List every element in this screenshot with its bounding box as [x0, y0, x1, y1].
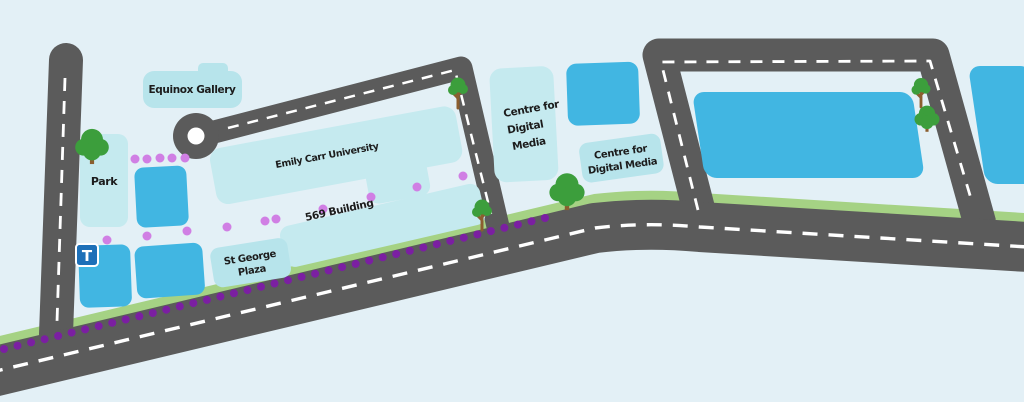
tree-canopy	[458, 84, 468, 94]
transit-marker-letter: T	[82, 247, 93, 265]
label-park: Park	[91, 175, 118, 188]
trail-dot-dark	[325, 266, 333, 274]
trail-dot-dark	[41, 335, 49, 343]
trail-dot-dark	[14, 342, 22, 350]
trail-dot-dark	[189, 299, 197, 307]
trail-dot-light	[223, 223, 232, 232]
trail-dot-dark	[257, 283, 265, 291]
trail-dot-dark	[473, 230, 481, 238]
building-blue-3[interactable]	[134, 242, 205, 299]
trail-dot-dark	[379, 253, 387, 261]
trail-dot-light	[413, 183, 422, 192]
trail-dot-light	[168, 154, 177, 163]
trail-dot-dark	[0, 345, 8, 353]
trail-dot-dark	[27, 338, 35, 346]
trail-dot-dark	[500, 224, 508, 232]
trail-dot-dark	[541, 214, 549, 222]
trail-dot-dark	[162, 306, 170, 314]
trail-dot-dark	[95, 322, 103, 330]
tree-canopy	[558, 188, 577, 207]
trail-dot-dark	[54, 332, 62, 340]
transit-marker[interactable]: T	[76, 244, 98, 266]
trail-dot-dark	[271, 280, 279, 288]
trail-dot-dark	[176, 302, 184, 310]
trail-dot-dark	[528, 217, 536, 225]
tree-canopy	[482, 206, 492, 216]
trail-dot-dark	[392, 250, 400, 258]
trail-dot-dark	[284, 276, 292, 284]
tree-canopy	[83, 143, 101, 161]
trail-dot-dark	[122, 316, 130, 324]
trail-dot-dark	[514, 221, 522, 229]
trail-dot-light	[103, 236, 112, 245]
trail-dot-dark	[135, 312, 143, 320]
trail-dot-light	[459, 172, 468, 181]
trail-dot-dark	[352, 260, 360, 268]
trail-dot-dark	[244, 286, 252, 294]
roundabout	[173, 113, 219, 159]
trail-dot-light	[272, 215, 281, 224]
trail-dot-light	[156, 154, 165, 163]
trail-dot-dark	[298, 273, 306, 281]
trail-dot-dark	[365, 257, 373, 265]
trail-dot-dark	[419, 244, 427, 252]
roundabout-island	[188, 128, 205, 145]
trail-dot-dark	[81, 325, 89, 333]
trail-dot-dark	[108, 319, 116, 327]
label-equinox-gallery: Equinox Gallery	[149, 84, 236, 96]
trail-dot-dark	[460, 234, 468, 242]
trail-dot-light	[143, 232, 152, 241]
trail-dot-light	[261, 217, 270, 226]
trail-dot-dark	[446, 237, 454, 245]
trail-dot-light	[143, 155, 152, 164]
trail-dot-light	[183, 227, 192, 236]
trail-dot-light	[131, 155, 140, 164]
trail-dot-dark	[433, 240, 441, 248]
tree-canopy	[472, 207, 482, 217]
trail-dot-light	[181, 154, 190, 163]
tree-canopy	[921, 84, 931, 94]
trail-dot-dark	[311, 270, 319, 278]
tree-canopy	[448, 85, 458, 95]
building-blue-1[interactable]	[134, 165, 189, 228]
tree-canopy	[912, 85, 922, 95]
trail-dot-dark	[149, 309, 157, 317]
trail-dot-dark	[203, 296, 211, 304]
trail-dot-dark	[487, 227, 495, 235]
building-blue-loop[interactable]	[692, 92, 925, 178]
trail-dot-dark	[338, 263, 346, 271]
map-canvas[interactable]: Equinox Gallery Park Emily Carr Universi…	[0, 0, 1024, 402]
trail-dot-dark	[68, 329, 76, 337]
tree-canopy	[920, 116, 933, 129]
trail-dot-dark	[216, 293, 224, 301]
trail-dot-dark	[230, 289, 238, 297]
trail-dot-dark	[406, 247, 414, 255]
building-blue-4[interactable]	[566, 61, 640, 125]
